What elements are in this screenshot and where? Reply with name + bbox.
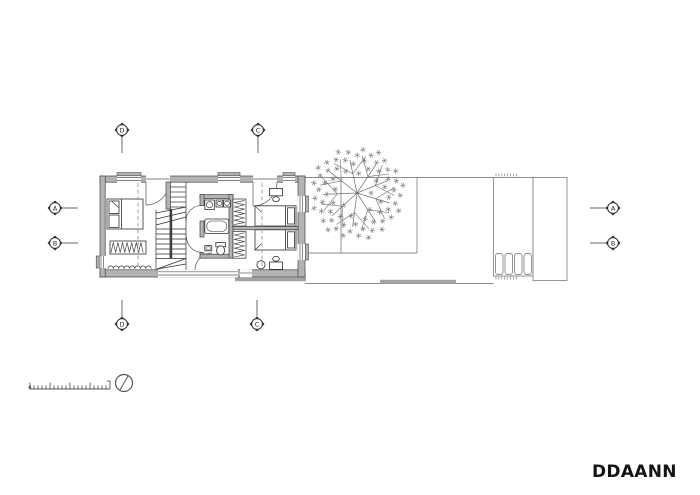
wall-right — [298, 176, 305, 277]
pillow — [288, 208, 295, 224]
garage-panel — [496, 254, 504, 275]
radiator-scallops — [108, 266, 151, 269]
garage-door-panels — [496, 254, 532, 275]
terrace-step — [380, 280, 456, 284]
stair-stub-wall — [166, 182, 171, 209]
north-arrow-icon — [116, 375, 133, 392]
tree — [311, 147, 406, 240]
strip-dash-marks — [496, 174, 516, 280]
pillow — [109, 215, 119, 228]
grid-marker-left-a: A — [48, 201, 79, 216]
door-swing-bath-top — [186, 206, 202, 221]
toilet-bowl — [217, 246, 225, 255]
exterior-sill-bar — [235, 277, 306, 281]
desk — [270, 262, 283, 269]
door-swing-bath-bottom — [187, 237, 202, 252]
svg-text:B: B — [611, 240, 615, 247]
grid-marker-top-c: C — [251, 123, 266, 154]
garage-panel — [524, 254, 532, 275]
chair — [273, 256, 280, 261]
door-swing-left-room — [146, 182, 169, 205]
floor-plan-drawing: D C D C A B — [0, 0, 700, 495]
svg-text:A: A — [611, 205, 616, 212]
svg-text:C: C — [256, 127, 261, 134]
bedroom-top-right — [255, 188, 296, 226]
stair-newel-wall — [170, 209, 173, 259]
grid-marker-top-d: D — [115, 123, 130, 154]
floor-plan-sheet: D C D C A B — [0, 0, 700, 495]
desk — [270, 188, 283, 195]
svg-text:A: A — [53, 205, 58, 212]
svg-text:B: B — [53, 240, 57, 247]
svg-text:C: C — [255, 321, 260, 328]
garage-panel — [515, 254, 523, 275]
chair — [273, 197, 280, 202]
staircase — [156, 182, 186, 270]
logo-ddaann: DDAANN — [592, 462, 677, 482]
pillow — [109, 201, 119, 214]
bath-wall-bottom — [200, 254, 233, 258]
left-bedroom — [107, 199, 151, 269]
stove — [257, 261, 265, 269]
grid-marker-right-b: B — [590, 236, 621, 251]
garage-panel — [505, 254, 513, 275]
grid-marker-bottom-d: D — [115, 300, 130, 332]
bath-wall-top — [200, 195, 233, 199]
bedroom-divider-wall — [233, 226, 298, 229]
svg-text:D: D — [120, 127, 125, 134]
scale-bar — [29, 381, 110, 389]
grid-marker-left-b: B — [48, 236, 79, 251]
bedroom-bottom-right — [255, 230, 296, 270]
garage-strip — [494, 178, 534, 277]
pillow — [288, 232, 295, 248]
house-floor-plan — [96, 173, 308, 282]
grid-marker-bottom-c: C — [250, 300, 265, 332]
bathroom — [205, 200, 231, 255]
side-building — [494, 174, 568, 281]
grid-marker-right-a: A — [590, 201, 621, 216]
svg-text:D: D — [120, 321, 125, 328]
side-building-body — [533, 178, 567, 281]
